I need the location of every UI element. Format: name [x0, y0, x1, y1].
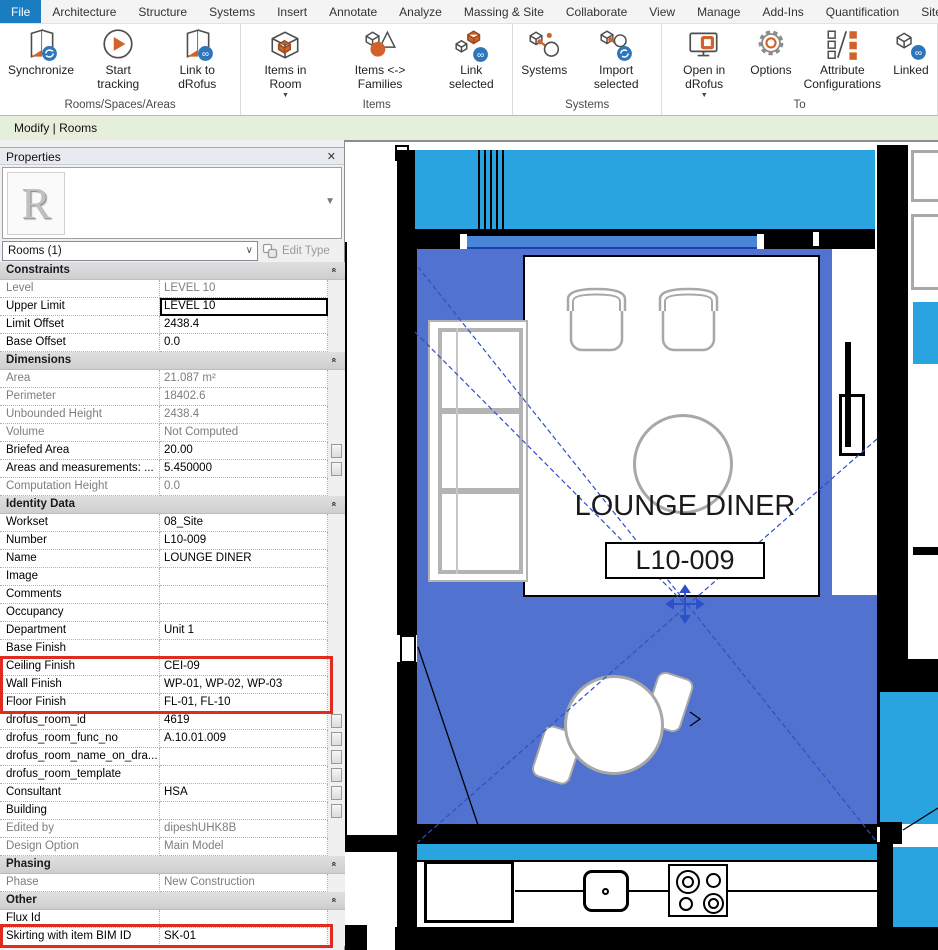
ribbon-group-to: Open in dRofus▼OptionsAttribute Configur… — [662, 24, 938, 115]
collapse-chevron-icon[interactable]: « — [329, 897, 339, 902]
property-value: LEVEL 10 — [160, 280, 328, 298]
import-icon — [598, 27, 634, 63]
property-value[interactable]: FL-01, FL-10 — [160, 694, 328, 712]
property-row: Upper LimitLEVEL 10 — [0, 298, 345, 316]
ribbon-tab-quantification[interactable]: Quantification — [815, 0, 910, 23]
property-side-column — [328, 694, 344, 712]
linked-icon: ∞ — [893, 27, 929, 63]
property-row: drofus_room_func_noA.10.01.009 — [0, 730, 345, 748]
property-row: Briefed Area20.00 — [0, 442, 345, 460]
property-side-column — [328, 532, 344, 550]
property-row: Ceiling FinishCEI-09 — [0, 658, 345, 676]
property-value[interactable]: L10-009 — [160, 532, 328, 550]
ribbon-tab-annotate[interactable]: Annotate — [318, 0, 388, 23]
collapse-chevron-icon[interactable]: « — [329, 357, 339, 362]
property-value: Main Model — [160, 838, 328, 856]
property-label: Ceiling Finish — [0, 658, 160, 676]
property-row: Edited bydipeshUHK8B — [0, 820, 345, 838]
collapse-chevron-icon[interactable]: « — [329, 861, 339, 866]
property-side-column — [328, 280, 344, 298]
property-row: Skirting with item BIM IDSK-01 — [0, 928, 345, 946]
property-value[interactable]: CEI-09 — [160, 658, 328, 676]
property-label: Briefed Area — [0, 442, 160, 460]
property-row: drofus_room_name_on_dra... — [0, 748, 345, 766]
shapes-icon — [362, 27, 398, 63]
revit-window: FileArchitectureStructureSystemsInsertAn… — [0, 0, 938, 950]
property-value: 2438.4 — [160, 406, 328, 424]
section-header-other[interactable]: Other« — [0, 892, 345, 910]
property-label: Design Option — [0, 838, 160, 856]
property-row: Computation Height0.0 — [0, 478, 345, 496]
property-label: Edited by — [0, 820, 160, 838]
property-value[interactable] — [160, 910, 328, 928]
modify-context-label: Modify | Rooms — [14, 121, 97, 135]
property-label: Floor Finish — [0, 694, 160, 712]
open-in-drofus-button[interactable]: Open in dRofus▼ — [664, 24, 744, 99]
attr-icon — [824, 27, 860, 63]
move-crosshair-icon — [667, 586, 703, 622]
property-side-column — [328, 514, 344, 532]
property-row: Design OptionMain Model — [0, 838, 345, 856]
property-label: Building — [0, 802, 160, 820]
property-side-column — [328, 424, 344, 442]
start-tracking-button[interactable]: Start tracking — [80, 24, 156, 92]
property-row: Base Finish — [0, 640, 345, 658]
items-families-button[interactable]: Items <-> Families — [328, 24, 433, 92]
gear-icon — [753, 27, 789, 63]
property-value[interactable] — [160, 604, 328, 622]
property-row: Wall FinishWP-01, WP-02, WP-03 — [0, 676, 345, 694]
property-label: drofus_room_id — [0, 712, 160, 730]
property-row: NameLOUNGE DINER — [0, 550, 345, 568]
button-label: Link selected — [438, 64, 504, 92]
systems-icon — [526, 27, 562, 63]
property-value[interactable] — [160, 748, 328, 766]
property-row: Limit Offset2438.4 — [0, 316, 345, 334]
ribbon-tab-structure[interactable]: Structure — [127, 0, 198, 23]
property-row: Building — [0, 802, 345, 820]
synchronize-button[interactable]: Synchronize — [2, 24, 80, 78]
import-selected-button[interactable]: Import selected — [573, 24, 659, 92]
property-value[interactable]: 2438.4 — [160, 316, 328, 334]
property-label: Limit Offset — [0, 316, 160, 334]
property-row: Flux Id — [0, 910, 345, 928]
associate-parameter-button[interactable] — [331, 462, 342, 476]
main-area: Properties ✕ R ▼ Rooms (1) ∨ Edit Type C… — [0, 140, 938, 950]
property-label: drofus_room_name_on_dra... — [0, 748, 160, 766]
property-value[interactable]: LEVEL 10 — [160, 298, 328, 316]
property-row: Area21.087 m² — [0, 370, 345, 388]
property-side-column — [328, 370, 344, 388]
property-label: Base Finish — [0, 640, 160, 658]
link-selected-button[interactable]: ∞Link selected — [432, 24, 510, 92]
associate-parameter-button[interactable] — [331, 732, 342, 746]
property-side-column — [328, 334, 344, 352]
property-value[interactable]: SK-01 — [160, 928, 328, 946]
ribbon-tab-massing-site[interactable]: Massing & Site — [453, 0, 555, 23]
link-to-drofus-button[interactable]: ∞Link to dRofus — [156, 24, 238, 92]
leader-line — [418, 647, 508, 842]
property-label: drofus_room_func_no — [0, 730, 160, 748]
button-label: Synchronize — [8, 64, 74, 78]
collapse-chevron-icon[interactable]: « — [329, 267, 339, 272]
property-row: DepartmentUnit 1 — [0, 622, 345, 640]
property-row: LevelLEVEL 10 — [0, 280, 345, 298]
property-value[interactable] — [160, 586, 328, 604]
items-in-room-button[interactable]: Items in Room▼ — [243, 24, 328, 99]
property-row: Workset08_Site — [0, 514, 345, 532]
property-label: Unbounded Height — [0, 406, 160, 424]
property-row: Perimeter18402.6 — [0, 388, 345, 406]
ribbon-tab-collaborate[interactable]: Collaborate — [555, 0, 638, 23]
tag-arrow — [690, 712, 700, 726]
properties-header[interactable]: Properties ✕ — [0, 147, 344, 165]
drofus-ribbon: Synchronize Start tracking ∞Link to dRof… — [0, 24, 938, 116]
drawing-canvas[interactable]: LOUNGE DINER L10-009 — [345, 140, 938, 950]
property-label: Consultant — [0, 784, 160, 802]
button-label: Items <-> Families — [334, 64, 427, 92]
options-button[interactable]: Options — [744, 24, 797, 78]
edit-type-icon — [262, 243, 278, 259]
property-label: Level — [0, 280, 160, 298]
property-value: dipeshUHK8B — [160, 820, 328, 838]
monitor-icon — [686, 27, 722, 63]
property-value[interactable] — [160, 568, 328, 586]
ribbon-tab-bar: FileArchitectureStructureSystemsInsertAn… — [0, 0, 938, 24]
ribbon-group-label: Systems — [515, 99, 659, 115]
button-label: Items in Room — [249, 64, 322, 92]
property-label: Base Offset — [0, 334, 160, 352]
property-row: NumberL10-009 — [0, 532, 345, 550]
associate-parameter-button[interactable] — [331, 768, 342, 782]
property-side-column — [328, 766, 344, 784]
property-value[interactable] — [160, 640, 328, 658]
property-label: Image — [0, 568, 160, 586]
dropdown-arrow-icon[interactable]: ▼ — [701, 93, 708, 99]
property-row: PhaseNew Construction — [0, 874, 345, 892]
svg-text:∞: ∞ — [915, 48, 922, 59]
ribbon-group-rooms-spaces-areas: Synchronize Start tracking ∞Link to dRof… — [0, 24, 241, 115]
button-label: Options — [750, 64, 791, 78]
button-label: Systems — [521, 64, 567, 78]
edit-type-label: Edit Type — [282, 245, 330, 257]
property-grid: Constraints«LevelLEVEL 10Upper LimitLEVE… — [0, 262, 345, 946]
property-label: Flux Id — [0, 910, 160, 928]
property-side-column — [328, 442, 344, 460]
button-label: Link to dRofus — [162, 64, 232, 92]
ribbon-tab-file[interactable]: File — [0, 0, 41, 23]
ribbon-tab-view[interactable]: View — [638, 0, 686, 23]
ribbon-tab-add-ins[interactable]: Add-Ins — [751, 0, 814, 23]
property-side-column — [328, 406, 344, 424]
room-name-label[interactable]: LOUNGE DINER — [535, 490, 835, 526]
property-label: Phase — [0, 874, 160, 892]
associate-parameter-button[interactable] — [331, 786, 342, 800]
property-side-column — [328, 748, 344, 766]
property-side-column — [328, 820, 344, 838]
ribbon-tab-systems[interactable]: Systems — [198, 0, 266, 23]
property-side-column — [328, 640, 344, 658]
property-side-column — [328, 676, 344, 694]
property-label: Areas and measurements: ... — [0, 460, 160, 478]
property-row: ConsultantHSA — [0, 784, 345, 802]
property-side-column — [328, 568, 344, 586]
ribbon-group-label: To — [664, 99, 935, 115]
property-row: drofus_room_template — [0, 766, 345, 784]
button-label: Attribute Configurations — [804, 64, 881, 92]
modify-context-bar: Modify | Rooms — [0, 116, 938, 140]
ribbon-group-systems: SystemsImport selectedSystems — [513, 24, 662, 115]
revit-family-thumbnail: R — [7, 172, 65, 235]
property-value: Not Computed — [160, 424, 328, 442]
property-row: Unbounded Height2438.4 — [0, 406, 345, 424]
property-side-column — [328, 478, 344, 496]
property-side-column — [328, 658, 344, 676]
property-value[interactable] — [160, 766, 328, 784]
property-label: Perimeter — [0, 388, 160, 406]
property-side-column — [328, 928, 344, 946]
ribbon-group-label: Items — [243, 99, 510, 115]
property-value: New Construction — [160, 874, 328, 892]
property-side-column — [328, 838, 344, 856]
property-row: Base Offset0.0 — [0, 334, 345, 352]
property-row: Comments — [0, 586, 345, 604]
property-side-column — [328, 730, 344, 748]
property-side-column — [328, 874, 344, 892]
attribute-configurations-button[interactable]: Attribute Configurations — [798, 24, 887, 92]
instance-filter-combo[interactable]: Rooms (1) ∨ — [2, 241, 258, 261]
item-box-icon — [267, 27, 303, 63]
property-side-column — [328, 586, 344, 604]
property-side-column — [328, 802, 344, 820]
property-label: Wall Finish — [0, 676, 160, 694]
property-value[interactable]: 20.00 — [160, 442, 328, 460]
property-side-column — [328, 388, 344, 406]
property-value: 0.0 — [160, 478, 328, 496]
close-icon[interactable]: ✕ — [327, 150, 336, 163]
ribbon-tab-architecture[interactable]: Architecture — [41, 0, 127, 23]
properties-title: Properties — [6, 150, 61, 164]
button-label: Open in dRofus — [670, 64, 738, 92]
room-number-tag[interactable]: L10-009 — [605, 542, 765, 579]
sync-room-icon — [23, 27, 59, 63]
property-row: Areas and measurements: ...5.450000 — [0, 460, 345, 478]
property-side-column — [328, 910, 344, 928]
dropdown-arrow-icon[interactable]: ▼ — [282, 93, 289, 99]
ribbon-group-items: Items in Room▼Items <-> Families∞Link se… — [241, 24, 513, 115]
property-value: 21.087 m² — [160, 370, 328, 388]
property-side-column — [328, 622, 344, 640]
property-side-column — [328, 460, 344, 478]
property-row: drofus_room_id4619 — [0, 712, 345, 730]
collapse-chevron-icon[interactable]: « — [329, 501, 339, 506]
ribbon-group-label: Rooms/Spaces/Areas — [2, 99, 238, 115]
property-value[interactable] — [160, 802, 328, 820]
associate-parameter-button[interactable] — [331, 444, 342, 458]
property-label: Volume — [0, 424, 160, 442]
property-value[interactable]: HSA — [160, 784, 328, 802]
property-value[interactable]: WP-01, WP-02, WP-03 — [160, 676, 328, 694]
associate-parameter-button[interactable] — [331, 804, 342, 818]
property-label: Area — [0, 370, 160, 388]
property-label: Computation Height — [0, 478, 160, 496]
property-side-column — [328, 316, 344, 334]
section-header-identity-data[interactable]: Identity Data« — [0, 496, 345, 514]
ribbon-tab-manage[interactable]: Manage — [686, 0, 751, 23]
section-header-dimensions[interactable]: Dimensions« — [0, 352, 345, 370]
svg-text:∞: ∞ — [202, 49, 209, 60]
property-label: Upper Limit — [0, 298, 160, 316]
property-row: Occupancy — [0, 604, 345, 622]
door-swing-line — [903, 808, 938, 830]
property-label: Name — [0, 550, 160, 568]
systems-button[interactable]: Systems — [515, 24, 573, 78]
property-row: Image — [0, 568, 345, 586]
property-label: Workset — [0, 514, 160, 532]
property-side-column — [328, 550, 344, 568]
property-side-column — [328, 298, 344, 316]
property-value: 18402.6 — [160, 388, 328, 406]
property-label: Department — [0, 622, 160, 640]
property-value[interactable]: LOUNGE DINER — [160, 550, 328, 568]
property-side-column — [328, 712, 344, 730]
section-header-constraints[interactable]: Constraints« — [0, 262, 345, 280]
link-room-icon: ∞ — [179, 27, 215, 63]
property-label: Skirting with item BIM ID — [0, 928, 160, 946]
linked-button[interactable]: ∞Linked — [887, 24, 935, 78]
ribbon-tab-insert[interactable]: Insert — [266, 0, 318, 23]
property-value[interactable]: A.10.01.009 — [160, 730, 328, 748]
property-value[interactable]: 5.450000 — [160, 460, 328, 478]
property-row: Floor FinishFL-01, FL-10 — [0, 694, 345, 712]
ribbon-tab-site-des[interactable]: Site Des — [910, 0, 938, 23]
property-label: drofus_room_template — [0, 766, 160, 784]
property-value[interactable]: 08_Site — [160, 514, 328, 532]
edit-type-button[interactable]: Edit Type — [262, 241, 342, 261]
property-value[interactable]: 0.0 — [160, 334, 328, 352]
properties-panel: Properties ✕ R ▼ Rooms (1) ∨ Edit Type C… — [0, 140, 345, 950]
chevron-down-icon[interactable]: ∨ — [246, 245, 253, 256]
chevron-down-icon[interactable]: ▼ — [325, 196, 335, 207]
property-value[interactable]: Unit 1 — [160, 622, 328, 640]
link-items-icon: ∞ — [453, 27, 489, 63]
floor-plan: LOUNGE DINER L10-009 — [345, 142, 938, 950]
section-header-phasing[interactable]: Phasing« — [0, 856, 345, 874]
button-label: Import selected — [579, 64, 653, 92]
property-value[interactable]: 4619 — [160, 712, 328, 730]
property-row: VolumeNot Computed — [0, 424, 345, 442]
ribbon-tab-analyze[interactable]: Analyze — [388, 0, 453, 23]
type-selector[interactable]: R ▼ — [2, 167, 342, 239]
property-label: Comments — [0, 586, 160, 604]
property-side-column — [328, 604, 344, 622]
button-label: Linked — [893, 64, 928, 78]
associate-parameter-button[interactable] — [331, 750, 342, 764]
property-label: Number — [0, 532, 160, 550]
associate-parameter-button[interactable] — [331, 714, 342, 728]
button-label: Start tracking — [86, 64, 150, 92]
property-side-column — [328, 784, 344, 802]
play-icon — [100, 27, 136, 63]
svg-text:∞: ∞ — [477, 50, 484, 61]
instance-filter-label: Rooms (1) — [8, 245, 62, 257]
property-label: Occupancy — [0, 604, 160, 622]
